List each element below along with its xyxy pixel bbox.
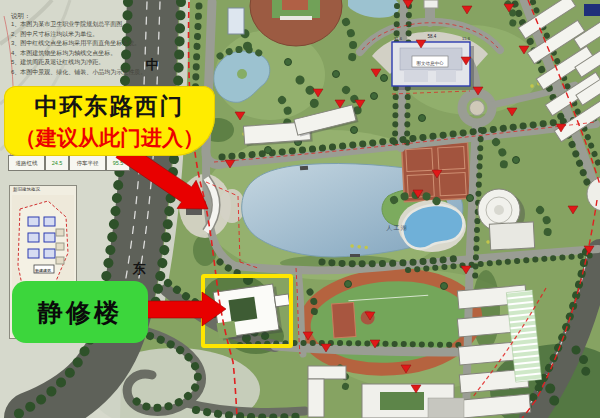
building-highlight-box [201,274,293,348]
dim-label-side2: 15.6 [462,36,471,41]
lake-label: 人工湖 [386,224,408,231]
west-gate-callout-title: 中环东路西门 [35,91,185,122]
swimming-pool [398,200,466,252]
jingxiu-callout-label: 静修楼 [38,296,122,329]
north-gate [424,0,438,8]
plan-note: 3、图中红线交点坐标均采用平面直角坐标系统。 [11,39,133,49]
inset-label-new: 新建建筑 [35,268,51,273]
dim-label-center: 58.4 [428,34,437,39]
stat-label: 停车半径 [69,155,106,171]
stat-value: 24.5 [45,155,69,171]
stat-label: 道路红线 [8,155,45,171]
stat-value: 95.5 [106,155,130,171]
campus-map-screenshot: 中 东 人工湖 图文信息中心 58.4 15.6 15.6 说明： 1、本图为某… [0,0,600,418]
plan-note: 6、本图中景观、绿化、铺装、小品均为示意性质。 [11,68,133,78]
inset-title: 新旧建筑概况 [10,186,76,192]
corner-building [584,4,600,16]
library-label: 图文信息中心 [417,60,445,66]
plan-note: 4、本图建筑物坐标均为轴线交点坐标。 [11,49,133,59]
library-building [392,42,474,90]
road-label-zhong: 中 [146,57,159,72]
road-label-dong: 东 [132,261,147,276]
plan-note: 1、本图为某市卫生职业学院规划总平面图。 [11,20,133,30]
dim-label-side: 15.6 [394,36,403,41]
jingxiu-callout: 静修楼 [12,281,148,343]
plan-notes-title: 说明： [11,12,133,20]
plan-note: 5、建筑间距及退让红线均为净距。 [11,58,133,68]
plan-note: 2、图中尺寸标注均以米为单位。 [11,30,133,40]
west-gate-callout: 中环东路西门 （建议从此门进入） [4,86,215,156]
west-gate-callout-subtitle: （建议从此门进入） [15,124,204,152]
stats-bar: 道路红线 24.5 停车半径 95.5 [8,155,130,171]
plan-notes: 说明： 1、本图为某市卫生职业学院规划总平面图。 2、图中尺寸标注均以米为单位。… [11,12,133,78]
tower-building [228,8,244,34]
